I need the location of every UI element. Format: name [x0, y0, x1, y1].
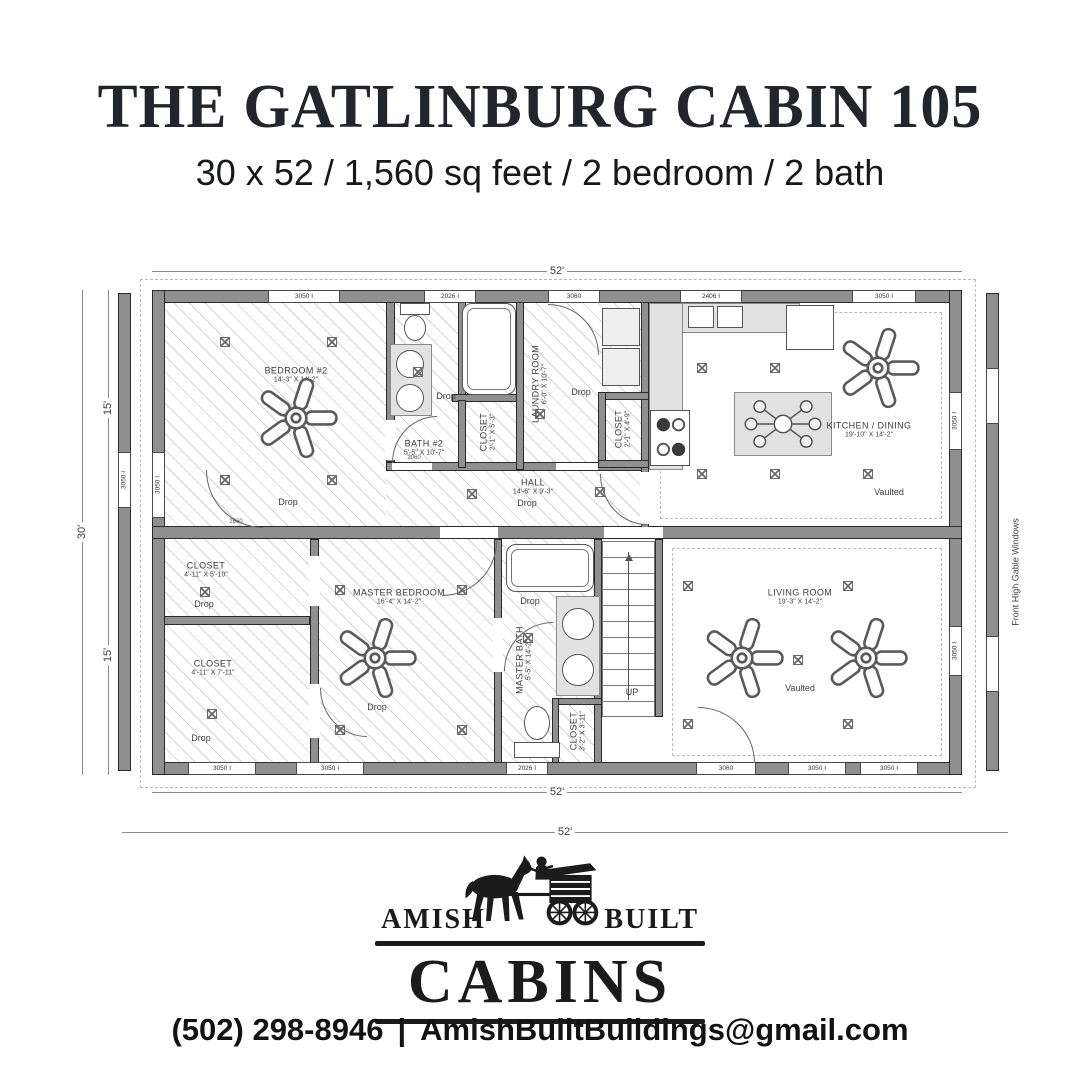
dim-bottom-outer: 52' — [555, 826, 575, 838]
kitchen-sink — [717, 306, 743, 328]
can-light-icon — [770, 469, 780, 479]
room-label-closet-lower-left: CLOSET 4'-11" X 7'-11" — [191, 658, 234, 677]
can-light-icon — [843, 581, 853, 591]
dim-top: 52' — [547, 265, 567, 277]
window: 3050 I — [296, 762, 364, 775]
logo-word-cabins: CABINS — [375, 951, 705, 1014]
door-size-label: 2660 — [229, 519, 242, 525]
closet-mb-top-wall — [552, 698, 602, 705]
right-gable-window-upper — [986, 368, 999, 424]
dim-bottom: 52' — [547, 786, 567, 798]
flyer-page: THE GATLINBURG CABIN 105 30 x 52 / 1,560… — [0, 0, 1080, 1080]
toilet-bowl — [404, 315, 426, 341]
stairs-up-arrow — [628, 552, 629, 700]
stairs-right-wall — [655, 539, 663, 717]
room-label-closet-hall: CLOSET 2'-1" X 4'-9" — [613, 410, 632, 448]
window: 3050 I — [188, 762, 256, 775]
closet-hall-bottom-wall — [598, 460, 649, 468]
left-gable-wall — [118, 293, 131, 771]
ceiling-fan-icon — [332, 615, 418, 701]
note-drop: Drop — [517, 498, 537, 508]
logo-divider — [375, 941, 705, 946]
dim-left-upper: 15' — [102, 398, 114, 418]
window: 2406 I — [680, 290, 742, 303]
note-drop: Drop — [191, 733, 211, 743]
can-light-icon — [220, 337, 230, 347]
ceiling-fan-icon — [835, 325, 921, 411]
can-light-icon — [683, 719, 693, 729]
right-gable-window-lower — [986, 636, 999, 692]
washer — [602, 308, 640, 346]
room-label-master-bath: MASTER BATH 5'-5" X 14'-2" — [514, 626, 533, 694]
can-light-icon — [697, 363, 707, 373]
window-label: 3050 I — [155, 474, 162, 496]
ceiling-fan-icon — [823, 615, 909, 701]
left-gable-window-label: 3050 I — [121, 469, 128, 491]
room-label-laundry: LAUNDRY ROOM 6'-0" X 10'-7" — [530, 345, 549, 423]
window: 3050 I — [268, 290, 340, 303]
note-drop: Drop — [571, 387, 591, 397]
dim-left-total: 30' — [76, 522, 88, 542]
can-light-icon — [413, 367, 423, 377]
toilet-tank — [514, 742, 560, 758]
closet-hall-left-wall — [598, 392, 606, 468]
window: 2026 I — [506, 762, 548, 775]
refrigerator — [786, 305, 834, 350]
can-light-icon — [683, 581, 693, 591]
kitchen-island — [734, 392, 832, 456]
note-drop: Drop — [278, 497, 298, 507]
ceiling-fan-icon — [699, 615, 785, 701]
ceiling-fan-icon — [253, 375, 339, 461]
right-gable-wall — [986, 293, 999, 771]
can-light-icon — [335, 725, 345, 735]
can-light-icon — [793, 655, 803, 665]
bathtub — [462, 303, 516, 395]
note-drop: Drop — [520, 596, 540, 606]
can-light-icon — [200, 587, 210, 597]
can-light-icon — [595, 487, 605, 497]
dim-left-lower: 15' — [102, 645, 114, 665]
window: 3050 I — [860, 762, 918, 775]
can-light-icon — [697, 469, 707, 479]
note-vaulted: Vaulted — [874, 487, 904, 497]
contact-line: (502) 298-8946|AmishBuiltBuildings@gmail… — [0, 1012, 1080, 1048]
can-light-icon — [843, 719, 853, 729]
sink — [562, 654, 594, 686]
front-door: 3060 — [696, 762, 756, 775]
brand-logo: AMISH BUILT CABINS — [375, 852, 705, 1029]
closet-bath2-left-wall — [458, 400, 466, 468]
dryer — [602, 348, 640, 386]
can-light-icon — [207, 709, 217, 719]
sink — [562, 608, 594, 640]
master-bathtub — [506, 544, 594, 592]
can-light-icon — [327, 337, 337, 347]
horse-and-buggy-icon — [450, 846, 630, 932]
toilet-bowl — [524, 706, 550, 740]
sink — [396, 384, 424, 412]
island-table-icon — [735, 393, 831, 455]
wall-middle — [152, 526, 962, 539]
separator: | — [397, 1012, 406, 1047]
phone-number: (502) 298-8946 — [171, 1012, 383, 1047]
note-drop: Drop — [194, 599, 214, 609]
window-label: 3050 I — [952, 410, 959, 432]
side-note: Front High Gable Windows — [1011, 518, 1022, 626]
window: 2026 I — [424, 290, 476, 303]
note-drop: Drop — [436, 391, 456, 401]
closet-divider-wall — [164, 616, 310, 625]
can-light-icon — [457, 585, 467, 595]
laundry-left-wall — [516, 302, 524, 470]
back-door: 3060 — [548, 290, 600, 303]
toilet — [400, 303, 430, 315]
room-label-living: LIVING ROOM 19'-3" X 14'-2" — [768, 587, 832, 606]
note-drop: Drop — [367, 702, 387, 712]
window-label: 3050 I — [952, 640, 959, 662]
can-light-icon — [863, 469, 873, 479]
room-label-closet-upper-left: CLOSET 4'-11" X 5'-10" — [184, 560, 228, 579]
room-label-closet-master-bath: CLOSET 3'-2" X 3'-11" — [568, 711, 587, 751]
can-light-icon — [467, 489, 477, 499]
room-label-bath2: BATH #2 5'-5" X 10'-7" — [404, 438, 444, 457]
can-light-icon — [327, 475, 337, 485]
can-light-icon — [335, 585, 345, 595]
email-address: AmishBuiltBuildings@gmail.com — [420, 1012, 908, 1047]
window: 3050 I — [852, 290, 916, 303]
can-light-icon — [770, 363, 780, 373]
room-label-hall: HALL 14'-6" X 9'-3" — [513, 477, 553, 496]
stove — [650, 410, 690, 466]
can-light-icon — [220, 475, 230, 485]
stairs-up-label: UP — [626, 687, 639, 697]
room-label-closet-bath2: CLOSET 2'-1" X 5'-3" — [478, 413, 497, 451]
window: 3050 I — [788, 762, 846, 775]
room-label-kitchen: KITCHEN / DINING 19'-10" X 14'-2" — [827, 420, 912, 439]
room-label-master-bedroom: MASTER BEDROOM 16'-4" X 14'-2" — [353, 587, 445, 606]
kitchen-sink — [688, 306, 714, 328]
note-vaulted: Vaulted — [785, 683, 815, 693]
can-light-icon — [457, 725, 467, 735]
